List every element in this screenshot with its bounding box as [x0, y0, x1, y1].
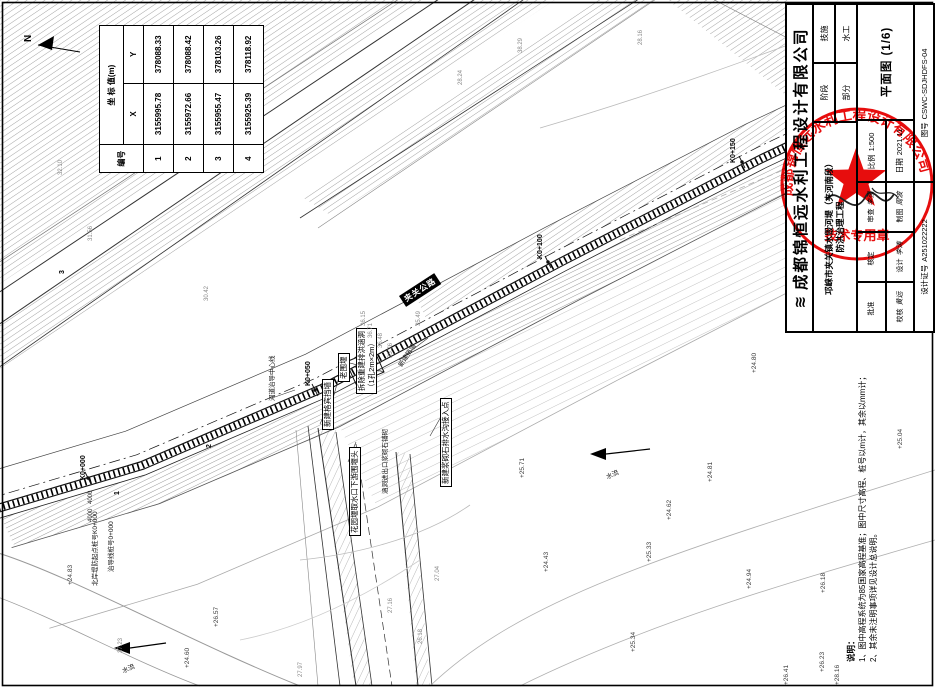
spot-elevation: +26.57	[213, 607, 220, 627]
text-label: 北岸堤防起点桩号K0+000	[89, 511, 99, 586]
spot-elevation: +28.16	[834, 665, 841, 685]
signature-role: 制图	[895, 209, 905, 223]
coord-col-x-header: X	[124, 83, 144, 145]
coord-point-id: 1	[144, 145, 174, 173]
spot-elevation: +26.18	[820, 573, 827, 593]
date-value: 2021.11	[895, 129, 904, 156]
coord-table-header: 坐 标 值(m)	[100, 26, 124, 145]
survey-number: 26.18	[418, 629, 424, 644]
part-label: 部分	[835, 63, 857, 122]
station-label: K0+000	[80, 455, 87, 480]
survey-number: 27.16	[388, 598, 394, 613]
survey-number: 36.15	[361, 311, 367, 326]
spot-elevation: +26.41	[783, 665, 790, 685]
text-label: 水流	[120, 661, 136, 676]
survey-number: 36.71	[368, 323, 374, 338]
coord-point-x: 3155995.78	[144, 83, 174, 145]
coord-point-y: 378118.92	[234, 26, 264, 84]
survey-number: 31.56	[88, 226, 94, 241]
title-block: ≋ 成都锦恒远水利工程设计有限公司 邛崃市夹关镇水毁河堤（夹河南段） 防洪治理工…	[785, 3, 935, 333]
coord-table-row: 2 3155972.66 378088.42	[174, 26, 204, 173]
company-name-cell: ≋ 成都锦恒远水利工程设计有限公司	[786, 4, 813, 332]
culvert-label-line1: 拆除重建排洪涵洞	[357, 331, 367, 391]
spot-elevation: +24.62	[666, 500, 673, 520]
station-label: K0+100	[537, 234, 544, 259]
cert-label: 设计证号	[919, 265, 930, 295]
coord-point-id: 3	[204, 145, 234, 173]
signature-name: 李强	[866, 192, 876, 206]
signature-cell: 制图 周波	[886, 182, 915, 232]
scale-cell: 比例 1:500	[857, 120, 886, 182]
drawing-sheet: N 夹关公路 拆除重建排洪涵洞 （1孔2m×2m） K0+000K0+050K0…	[0, 0, 935, 688]
spot-elevation: +24.80	[751, 353, 758, 373]
road-name-label: 夹关公路	[399, 273, 441, 307]
text-label: 河道治导中心线	[266, 356, 276, 402]
text-label: 新建挡墙	[395, 341, 418, 368]
spot-elevation: +24.83	[67, 565, 74, 585]
spot-elevation: +26.23	[819, 652, 826, 672]
feature-label: 新建格宾挡墙	[322, 379, 334, 430]
survey-number: 28.16	[638, 30, 644, 45]
project-name-line1: 邛崃市夹关镇水毁河堤（夹河南段）	[824, 159, 835, 295]
drawing-title: 平面图 (1/6)	[857, 4, 914, 120]
survey-number: 35.76	[388, 343, 394, 358]
survey-number: 28.24	[458, 70, 464, 85]
notes-list: 1、图中高程系统为85国家高程基准；图中尺寸高程、桩号以m计，其余以mm计；2、…	[857, 392, 879, 662]
feature-label: 老围堰	[338, 354, 350, 383]
coord-col-id-header: 编号	[100, 145, 144, 173]
signature-role: 设计	[895, 259, 905, 273]
feature-label: 新建浆砌石排水沟接入点	[440, 399, 452, 488]
survey-number: 27.97	[298, 662, 304, 677]
coord-point-id: 2	[174, 145, 204, 173]
coord-point-x: 3155972.66	[174, 83, 204, 145]
dimension-value: 4000	[88, 491, 94, 504]
stage-label: 阶段	[813, 63, 835, 122]
spot-elevation: +24.43	[543, 552, 550, 572]
text-label: 治导线桩号0+000	[105, 521, 115, 572]
signature-name: 黄远	[895, 292, 905, 306]
spot-elevation: +24.81	[707, 462, 714, 482]
coord-point-id: 4	[234, 145, 264, 173]
coordinate-point-number: 2	[206, 444, 213, 448]
coordinate-point-number: 1	[114, 491, 121, 495]
notes-block: 说明： 1、图中高程系统为85国家高程基准；图中尺寸高程、桩号以m计，其余以mm…	[845, 392, 899, 662]
spot-elevation: +24.60	[184, 648, 191, 668]
coordinate-point-number: 3	[59, 270, 66, 274]
culvert-label-line2: （1孔2m×2m）	[367, 331, 377, 391]
signature-role: 核定	[866, 252, 876, 266]
note-item: 2、其余未注明事项详见设计总说明。	[868, 392, 879, 662]
dimension-value: 4000	[88, 509, 94, 522]
signature-grid: 批准 核定 审查 李强 校核 黄远 设计 李涛	[857, 182, 914, 332]
north-label: N	[23, 35, 34, 42]
text-label: 涵洞进出口浆砌石铺砌	[379, 429, 389, 494]
signature-role: 校核	[895, 309, 905, 323]
survey-number: 30.42	[204, 286, 210, 301]
spot-elevation: +25.34	[630, 632, 637, 652]
coord-point-x: 3155955.47	[204, 83, 234, 145]
signature-role: 批准	[866, 302, 876, 316]
scale-value: 1:500	[867, 133, 876, 152]
coord-table-row: 4 3155925.39 378118.92	[234, 26, 264, 173]
signature-cell: 校核 黄远	[886, 282, 915, 332]
coord-col-y-header: Y	[124, 26, 144, 84]
signature-cell: 核定	[857, 232, 886, 282]
signature-cell: 批准	[857, 282, 886, 332]
stage-value: 技施	[813, 4, 835, 63]
survey-number: 32.10	[58, 160, 64, 175]
survey-number: 27.04	[435, 566, 441, 581]
coordinate-table: 编号 坐 标 值(m) X Y 1 3155995.78 378088.33 2…	[99, 25, 263, 173]
part-value: 水工	[835, 4, 857, 63]
spot-elevation: +25.71	[519, 458, 526, 478]
cert-cell: 设计证号 A251022222	[914, 182, 934, 332]
survey-number: 38.29	[518, 38, 524, 53]
text-label: 水流	[604, 467, 620, 482]
signature-name: 周波	[895, 192, 905, 206]
drawing-no-value: CSWC-SDJHDFS-04	[920, 49, 929, 120]
coord-point-y: 378103.26	[204, 26, 234, 84]
date-cell: 日期 2021.11	[886, 120, 915, 182]
coord-point-y: 378088.42	[174, 26, 204, 84]
coord-table-row: 1 3155995.78 378088.33	[144, 26, 174, 173]
survey-number: 35.49	[416, 311, 422, 326]
signature-role: 审查	[866, 209, 876, 223]
coord-point-y: 378088.33	[144, 26, 174, 84]
feature-label: 花园堰取水口下游围堰头	[349, 448, 361, 537]
survey-number: 27.23	[118, 638, 124, 653]
signature-cell: 审查 李强	[857, 182, 886, 232]
note-item: 1、图中高程系统为85国家高程基准；图中尺寸高程、桩号以m计，其余以mm计；	[857, 392, 868, 662]
survey-number: 36.48	[378, 333, 384, 348]
spot-elevation: +25.33	[646, 542, 653, 562]
notes-title: 说明：	[846, 636, 856, 662]
signature-cell: 设计 李涛	[886, 232, 915, 282]
station-label: K0+050	[305, 361, 312, 386]
cert-value: A251022222	[920, 219, 929, 262]
project-name-line2: 防洪治理工程	[835, 202, 846, 253]
company-name: 成都锦恒远水利工程设计有限公司	[789, 27, 811, 290]
signature-name: 李涛	[895, 242, 905, 256]
scale-label: 比例	[866, 154, 877, 169]
coord-point-x: 3155925.39	[234, 83, 264, 145]
station-label: K0+150	[730, 138, 737, 163]
date-label: 日期	[894, 158, 905, 173]
drawing-no-label: 图号	[919, 122, 930, 137]
spot-elevation: +24.94	[746, 569, 753, 589]
drawing-no-cell: 图号 CSWC-SDJHDFS-04	[914, 4, 934, 182]
coord-table-row: 3 3155955.47 378103.26	[204, 26, 234, 173]
project-name-cell: 邛崃市夹关镇水毁河堤（夹河南段） 防洪治理工程	[813, 122, 857, 332]
company-logo: ≋	[791, 294, 809, 309]
